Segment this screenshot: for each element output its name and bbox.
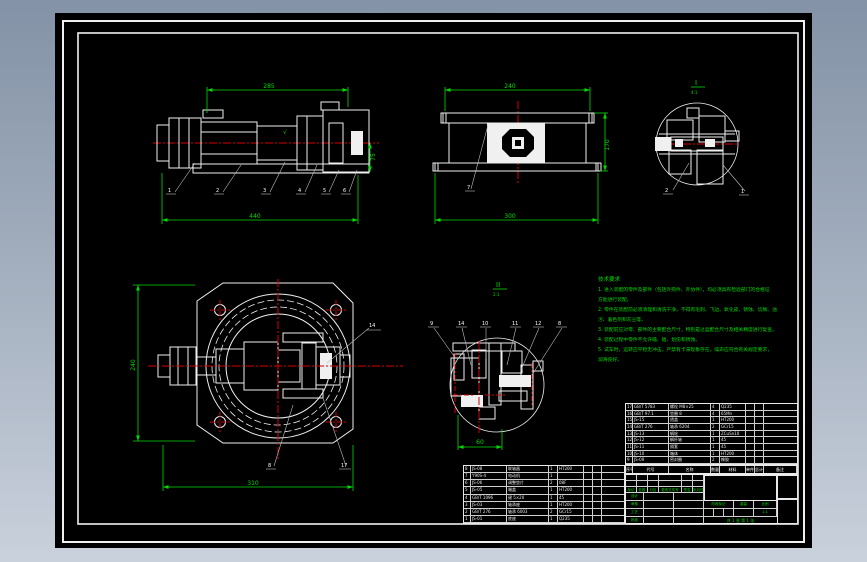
scale-value: 1:1 xyxy=(754,509,777,517)
bom-cell: 1 xyxy=(711,451,720,458)
bom-header-cell: 材料 xyxy=(720,466,746,473)
balloon-label: 12 xyxy=(535,321,541,327)
bom-cell: 1 xyxy=(464,516,471,523)
bom-cell xyxy=(746,417,755,424)
balloon-label: 2 xyxy=(216,188,219,194)
bom-cell xyxy=(602,502,624,509)
drawing-number-box xyxy=(704,475,777,501)
detail-ii-dimension: 60 xyxy=(458,415,502,450)
note-line: 4. 装配过程中零件不允许磕、碰、划伤和锈蚀。 xyxy=(598,336,700,343)
bom-cell: JS-06 xyxy=(471,480,507,487)
bom-cell: HT200 xyxy=(558,487,584,494)
balloon-label: 5 xyxy=(323,188,326,194)
change-record-grid xyxy=(626,475,704,487)
bom-cell xyxy=(764,404,797,411)
bom-cell: 底座 xyxy=(507,516,549,523)
bom-cell xyxy=(593,473,602,480)
bom-cell xyxy=(755,404,764,411)
bom-cell: GB/T 276 xyxy=(471,509,507,516)
bom-cell xyxy=(755,444,764,451)
dim-label: 60 xyxy=(476,439,484,446)
bom-cell xyxy=(746,437,755,444)
detail-ii-balloons: 9 14 10 11 12 8 xyxy=(428,321,567,375)
bom-cell xyxy=(584,516,593,523)
bom-cell xyxy=(602,509,624,516)
bom-cell: 1 xyxy=(549,502,558,509)
bom-cell: 轴承 6204 xyxy=(669,424,711,431)
front-view: 240 170 300 7 xyxy=(433,83,611,224)
balloon-label: 11 xyxy=(512,321,518,327)
balloon-label: 1 xyxy=(168,188,171,194)
bom-cell: GCr15 xyxy=(720,424,746,431)
bom-cell xyxy=(746,404,755,411)
bom-cell: 10 xyxy=(626,451,633,458)
bom-cell: JS-03 xyxy=(471,502,507,509)
balloon-label: 8 xyxy=(268,463,271,469)
bom-cell: 45 xyxy=(558,495,584,502)
stage-cells: 1:1 xyxy=(704,509,777,517)
bom-cell: 13 xyxy=(626,431,633,438)
bom-cell xyxy=(755,417,764,424)
bom-cell: JS-01 xyxy=(471,516,507,523)
dim-label: 300 xyxy=(504,213,516,220)
bom-cell: JS-15 xyxy=(633,417,669,424)
bom-cell xyxy=(602,516,624,523)
bom-cell: 15 xyxy=(626,417,633,424)
bom-cell: GB/T 276 xyxy=(633,424,669,431)
bom-cell xyxy=(746,457,755,464)
svg-text:II: II xyxy=(496,281,500,289)
bom-cell xyxy=(584,495,593,502)
bom-cell: 17 xyxy=(626,404,633,411)
bom-cell: 轴承座 xyxy=(507,502,549,509)
note-line: 污、着色剂和灰尘等。 xyxy=(598,316,646,323)
bom-cell: GB/T 1096 xyxy=(471,495,507,502)
bom-cell xyxy=(593,502,602,509)
bom-cell: 1 xyxy=(711,417,720,424)
dim-label: 75 xyxy=(370,153,377,161)
bom-cell: 隔套 xyxy=(669,444,711,451)
note-line: 3. 装配前应对零、部件的主要配合尺寸，特别是过盈配合尺寸及相关精度进行复查。 xyxy=(598,326,777,333)
bom-cell: 4 xyxy=(464,495,471,502)
balloon-label: 10 xyxy=(482,321,488,327)
note-line: 2. 零件在装配前必须清理和清洗干净，不得有毛刺、飞边、氧化皮、锈蚀、切屑、油 xyxy=(598,306,777,313)
bom-cell xyxy=(764,457,797,464)
bom-cell xyxy=(764,431,797,438)
cad-viewer-background: 285 √ 75 440 1 2 3 xyxy=(0,0,867,562)
bom-cell: 1 xyxy=(711,431,720,438)
bom-cell xyxy=(746,411,755,418)
note-line: 1. 进入装配的零件及部件（包括外购件、外协件），均必须具有检验部门的合格证 xyxy=(598,286,770,293)
bom-cell: 蜗杆轴 xyxy=(669,437,711,444)
bom-cell xyxy=(584,509,593,516)
balloon-label: 3 xyxy=(263,188,266,194)
bom-cell: 2 xyxy=(711,424,720,431)
side-section-view: 285 √ 75 440 1 2 3 xyxy=(153,83,379,224)
bom-cell xyxy=(755,457,764,464)
bom-cell: 2 xyxy=(464,509,471,516)
bom-header-cell: 序号 xyxy=(626,466,633,473)
bom-header-cell: 总计 xyxy=(755,466,764,473)
title-block: 标记 处数 分区 更改文件号 签名 年月日 设计 审核 工艺 批准 阶段标记 重… xyxy=(625,474,798,524)
signature-grid: 设计 审核 工艺 批准 xyxy=(626,493,704,525)
bom-cell xyxy=(593,466,602,473)
side-view-balloons: 1 2 3 4 5 6 xyxy=(166,162,357,194)
bom-cell xyxy=(593,495,602,502)
bom-cell: 1 xyxy=(711,437,720,444)
bom-header-cell: 备注 xyxy=(764,466,797,473)
bom-cell: Q235 xyxy=(558,516,584,523)
bom-cell: JS-05 xyxy=(471,487,507,494)
bom-cell: 5 xyxy=(464,487,471,494)
bom-cell: 蜗轮 xyxy=(669,431,711,438)
bom-cell: HT200 xyxy=(558,502,584,509)
bom-cell: 1 xyxy=(549,516,558,523)
dim-label: 240 xyxy=(504,83,516,90)
bom-cell xyxy=(755,451,764,458)
bom-cell: 8 xyxy=(464,466,471,473)
surface-finish-mark: √ xyxy=(283,129,287,136)
balloon-label: 4 xyxy=(298,188,301,194)
bom-cell xyxy=(755,437,764,444)
bom-cell xyxy=(746,424,755,431)
bom-cell: ZCuSn10 xyxy=(720,431,746,438)
svg-text:4:1: 4:1 xyxy=(691,90,698,95)
bom-cell: 键 5×20 xyxy=(507,495,549,502)
bom-cell: 橡胶 xyxy=(720,457,746,464)
bom-cell: 1 xyxy=(549,487,558,494)
bom-cell xyxy=(755,431,764,438)
bom-cell: 6 xyxy=(464,480,471,487)
bom-cell: 16 xyxy=(626,411,633,418)
bom-cell: Q235 xyxy=(720,404,746,411)
balloon-label: 9 xyxy=(430,321,433,327)
balloon-label: 2 xyxy=(665,188,668,194)
bom-cell xyxy=(764,444,797,451)
bom-cell: 45 xyxy=(720,444,746,451)
bom-cell xyxy=(584,487,593,494)
bom-cell: 轴承 6003 xyxy=(507,509,549,516)
bom-header-cell: 单件 xyxy=(746,466,755,473)
title-box-upper-right xyxy=(777,475,798,499)
detail-i-label: I 4:1 xyxy=(691,79,705,95)
top-view-dimensions: 240 310 xyxy=(130,285,353,491)
balloon-label: 6 xyxy=(343,188,346,194)
bom-cell: 14 xyxy=(626,424,633,431)
bom-cell xyxy=(764,417,797,424)
bom-cell xyxy=(584,473,593,480)
bom-cell xyxy=(584,502,593,509)
bom-cell xyxy=(755,424,764,431)
bom-cell: 透盖 xyxy=(669,417,711,424)
side-view-dimensions: 285 √ 75 440 xyxy=(162,83,377,224)
bom-cell: 联轴器 xyxy=(507,466,549,473)
note-line: 方能进行装配。 xyxy=(598,296,632,303)
bom-cell xyxy=(602,473,624,480)
bom-cell xyxy=(602,487,624,494)
bom-header-cell: 名称 xyxy=(669,466,711,473)
dim-label: 440 xyxy=(249,213,261,220)
bom-cell: 4 xyxy=(711,404,720,411)
dim-label: 240 xyxy=(130,359,137,371)
bom-cell: 密封圈 xyxy=(669,457,711,464)
bom-cell xyxy=(593,480,602,487)
bom-cell xyxy=(746,444,755,451)
bom-cell: HT200 xyxy=(720,417,746,424)
bom-cell: 2 xyxy=(549,480,558,487)
bom-cell: 垫圈 8 xyxy=(669,411,711,418)
bom-cell: 12 xyxy=(626,437,633,444)
bom-cell: 端盖 xyxy=(507,487,549,494)
dim-label: 310 xyxy=(247,480,259,487)
bom-cell: 1 xyxy=(549,495,558,502)
bom-cell: GB/T 97.1 xyxy=(633,411,669,418)
bom-cell xyxy=(593,516,602,523)
bom-header-cell: 数量 xyxy=(711,466,720,473)
note-line: 润滑良好。 xyxy=(598,356,622,363)
bom-cell: 调整垫片 xyxy=(507,480,549,487)
bom-cell xyxy=(764,437,797,444)
bom-cell: 7 xyxy=(464,473,471,480)
note-line: 5. 试车时，运转应平稳无冲击，严禁有卡滞现象存在，噪声应符合有关规定要求， xyxy=(598,346,772,353)
balloon-label: 14 xyxy=(458,321,464,327)
technical-notes: 技术要求 1. 进入装配的零件及部件（包括外购件、外协件），均必须具有检验部门的… xyxy=(598,275,777,363)
bom-cell: 11 xyxy=(626,444,633,451)
notes-title: 技术要求 xyxy=(598,275,621,283)
bom-cell: 1 xyxy=(549,466,558,473)
bom-cell xyxy=(764,411,797,418)
bom-cell: JS-13 xyxy=(633,431,669,438)
bom-cell: HT200 xyxy=(720,451,746,458)
bom-cell: JS-12 xyxy=(633,437,669,444)
parts-list-header: 序号代号名称数量材料单件总计备注 xyxy=(625,465,798,474)
bom-cell: JS-11 xyxy=(633,444,669,451)
bom-cell: JS-08 xyxy=(471,466,507,473)
stage-weight-scale-labels: 阶段标记 重量 比例 xyxy=(704,501,777,509)
title-box-lower-right xyxy=(777,499,798,524)
bom-cell xyxy=(593,509,602,516)
balloon-label: 17 xyxy=(341,463,347,469)
parts-list-lower: 8JS-08联轴器1HT2007Y90S-4电动机16JS-06调整垫片208F… xyxy=(463,465,625,524)
bom-cell: 2 xyxy=(711,457,720,464)
bom-cell: 螺栓 M8×25 xyxy=(669,404,711,411)
bom-cell: 1 xyxy=(711,444,720,451)
svg-text:2:1: 2:1 xyxy=(493,292,500,297)
detail-view-ii: II 2:1 60 9 14 10 xyxy=(428,281,567,450)
bom-header-cell: 代号 xyxy=(633,466,669,473)
bom-cell: 1 xyxy=(549,473,558,480)
bom-cell xyxy=(764,424,797,431)
bom-cell: JS-10 xyxy=(633,451,669,458)
bom-cell: Y90S-4 xyxy=(471,473,507,480)
sheet-count: 共 1 张 第 1 张 xyxy=(704,517,777,525)
detail-ii-label: II 2:1 xyxy=(493,281,507,297)
bom-cell: 箱体 xyxy=(669,451,711,458)
dim-label: 285 xyxy=(263,83,275,90)
bom-cell: 电动机 xyxy=(507,473,549,480)
bom-cell xyxy=(602,480,624,487)
balloon-label: 1 xyxy=(741,189,744,195)
bom-cell: 45 xyxy=(720,437,746,444)
balloon-label: 8 xyxy=(558,321,561,327)
bom-cell xyxy=(602,466,624,473)
bom-cell xyxy=(558,473,584,480)
bom-cell xyxy=(602,495,624,502)
bom-cell: GCr15 xyxy=(558,509,584,516)
bom-cell: 65Mn xyxy=(720,411,746,418)
bom-cell: 4 xyxy=(711,411,720,418)
bom-cell: JS-09 xyxy=(633,457,669,464)
bom-cell xyxy=(755,411,764,418)
detail-view-i: I 4:1 2 1 xyxy=(655,79,749,195)
bom-cell: 08F xyxy=(558,480,584,487)
bom-cell: GB/T 5783 xyxy=(633,404,669,411)
bom-cell xyxy=(764,451,797,458)
dim-label: 170 xyxy=(604,139,611,151)
bom-cell: 9 xyxy=(626,457,633,464)
bom-cell xyxy=(746,451,755,458)
bom-cell xyxy=(584,480,593,487)
bom-cell: 2 xyxy=(549,509,558,516)
parts-list-upper: 17GB/T 5783螺栓 M8×254Q23516GB/T 97.1垫圈 84… xyxy=(625,403,798,465)
bom-cell xyxy=(746,431,755,438)
bom-cell xyxy=(584,466,593,473)
svg-text:I: I xyxy=(695,79,697,87)
balloon-label: 14 xyxy=(369,323,375,329)
bom-cell xyxy=(593,487,602,494)
top-plan-view: 240 310 14 8 17 xyxy=(130,279,403,491)
front-view-balloon: 7 xyxy=(465,125,488,191)
bom-cell: HT200 xyxy=(558,466,584,473)
drawing-canvas: 285 √ 75 440 1 2 3 xyxy=(55,13,812,548)
balloon-label: 7 xyxy=(467,185,470,191)
bom-cell: 3 xyxy=(464,502,471,509)
